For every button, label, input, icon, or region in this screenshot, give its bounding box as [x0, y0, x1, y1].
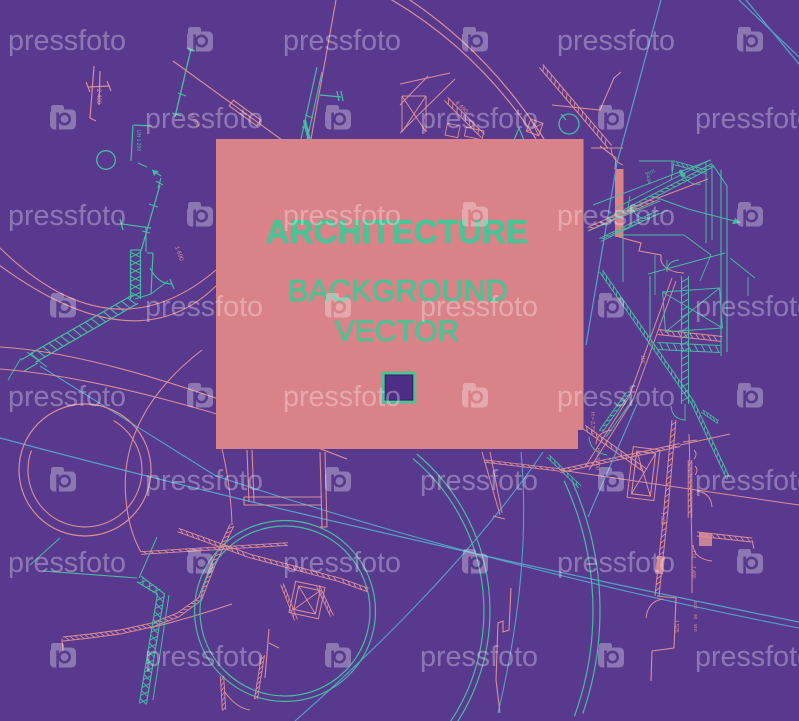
svg-text:pressfoto: pressfoto — [695, 641, 799, 673]
svg-text:pressfoto: pressfoto — [557, 547, 675, 579]
svg-text:pressfoto: pressfoto — [8, 381, 126, 413]
svg-text:370: 370 — [693, 601, 698, 609]
svg-text:pressfoto: pressfoto — [283, 381, 401, 413]
svg-text:1 480: 1 480 — [690, 566, 696, 579]
svg-text:H = 3,200: H = 3,200 — [594, 448, 600, 470]
svg-text:710: 710 — [690, 550, 696, 559]
svg-text:pressfoto: pressfoto — [145, 103, 263, 135]
svg-text:pressfoto: pressfoto — [8, 200, 126, 232]
svg-text:pressfoto: pressfoto — [557, 25, 675, 57]
svg-text:pressfoto: pressfoto — [283, 25, 401, 57]
svg-text:pressfoto: pressfoto — [145, 641, 263, 673]
svg-text:pressfoto: pressfoto — [420, 465, 538, 497]
svg-text:pressfoto: pressfoto — [695, 465, 799, 497]
svg-text:116: 116 — [639, 355, 645, 363]
svg-text:pressfoto: pressfoto — [557, 200, 675, 232]
svg-text:2 400: 2 400 — [95, 89, 101, 105]
svg-text:pressfoto: pressfoto — [695, 291, 799, 323]
svg-text:910: 910 — [693, 624, 698, 632]
svg-text:1 525: 1 525 — [673, 620, 679, 633]
svg-text:pressfoto: pressfoto — [420, 103, 538, 135]
svg-text:pressfoto: pressfoto — [145, 465, 263, 497]
svg-text:pressfoto: pressfoto — [283, 200, 401, 232]
svg-text:7 065: 7 065 — [659, 512, 665, 525]
svg-text:pressfoto: pressfoto — [557, 381, 675, 413]
svg-text:pressfoto: pressfoto — [420, 291, 538, 323]
svg-text:pressfoto: pressfoto — [695, 103, 799, 135]
svg-text:90: 90 — [693, 614, 698, 620]
svg-text:pressfoto: pressfoto — [420, 641, 538, 673]
svg-text:pressfoto: pressfoto — [283, 547, 401, 579]
svg-text:pressfoto: pressfoto — [8, 547, 126, 579]
svg-text:UH 1 200: UH 1 200 — [135, 130, 141, 151]
svg-text:pressfoto: pressfoto — [8, 25, 126, 57]
svg-text:pressfoto: pressfoto — [145, 291, 263, 323]
